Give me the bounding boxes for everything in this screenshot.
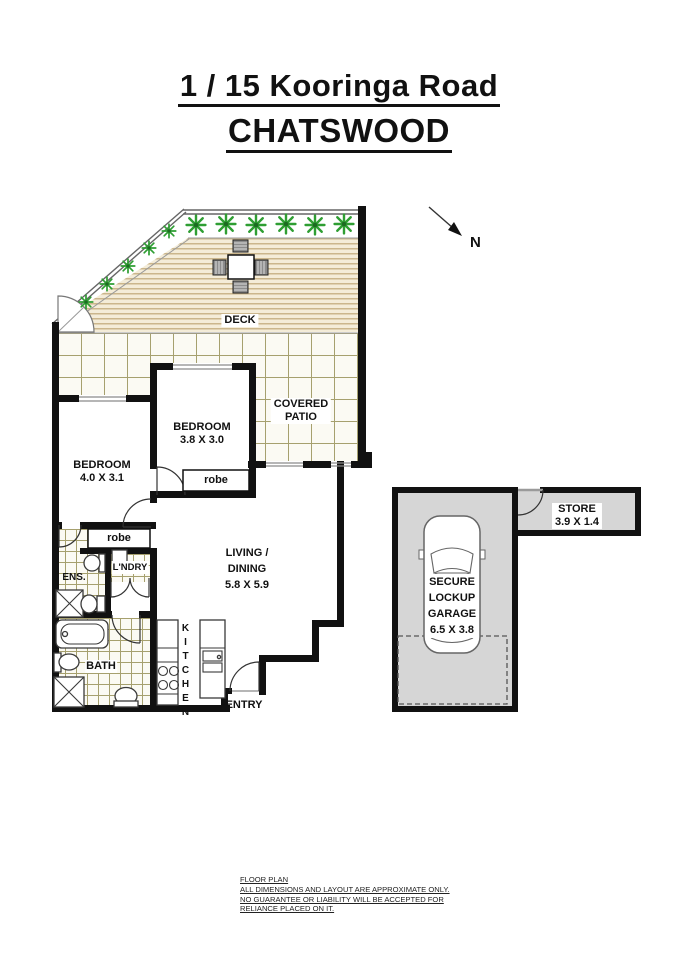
kitchen-label: KITCHEN — [180, 623, 191, 721]
bath-label: BATH — [85, 660, 117, 673]
bedroom-two-label: BEDROOM 3.8 X 3.0 — [173, 421, 230, 447]
disclaimer: FLOOR PLAN ALL DIMENSIONS AND LAYOUT ARE… — [240, 875, 450, 914]
entry-label: ENTRY — [226, 699, 263, 712]
laundry-label: L'NDRY — [112, 561, 149, 574]
deck-label: DECK — [221, 314, 258, 327]
stove-burner — [170, 667, 179, 676]
stove-burner — [159, 681, 168, 690]
title-suburb: CHATSWOOD — [226, 114, 452, 153]
covered-patio-label: COVERED PATIO — [271, 398, 331, 424]
garage-label: SECURE LOCKUP GARAGE 6.5 X 3.8 — [426, 574, 478, 638]
north-label: N — [470, 236, 481, 249]
kitchen-fittings — [157, 620, 225, 705]
floorplan-page: 1 / 15 Kooringa Road CHATSWOOD — [0, 0, 678, 960]
store-label: STORE 3.9 X 1.4 — [552, 503, 602, 529]
living-dining-label: LIVING / DINING 5.8 X 5.9 — [225, 545, 269, 593]
north-arrow-icon — [429, 207, 462, 236]
page-title: 1 / 15 Kooringa Road CHATSWOOD — [0, 70, 678, 153]
kitchen-bench-left — [157, 620, 178, 705]
robe-bedroom-label: robe — [204, 474, 228, 487]
kitchen-sink — [203, 663, 222, 672]
disclaimer-line: NO GUARANTEE OR LIABILITY WILL BE ACCEPT… — [240, 895, 450, 905]
deck-floor — [58, 238, 358, 332]
stove-burner — [170, 681, 179, 690]
disclaimer-line: ALL DIMENSIONS AND LAYOUT ARE APPROXIMAT… — [240, 885, 450, 895]
disclaimer-line: FLOOR PLAN — [240, 875, 450, 885]
kitchen-sink — [203, 651, 222, 661]
stove-burner — [159, 667, 168, 676]
bedroom-main-label: BEDROOM 4.0 X 3.1 — [73, 459, 130, 485]
ensuite-floor — [54, 529, 105, 611]
kitchen-bench-right — [200, 620, 225, 698]
disclaimer-line: RELIANCE PLACED ON IT. — [240, 904, 450, 914]
title-address: 1 / 15 Kooringa Road — [178, 70, 500, 107]
ensuite-label: ENS. — [62, 571, 85, 584]
sink-tap — [217, 655, 220, 658]
robe-hall-label: robe — [107, 532, 131, 545]
